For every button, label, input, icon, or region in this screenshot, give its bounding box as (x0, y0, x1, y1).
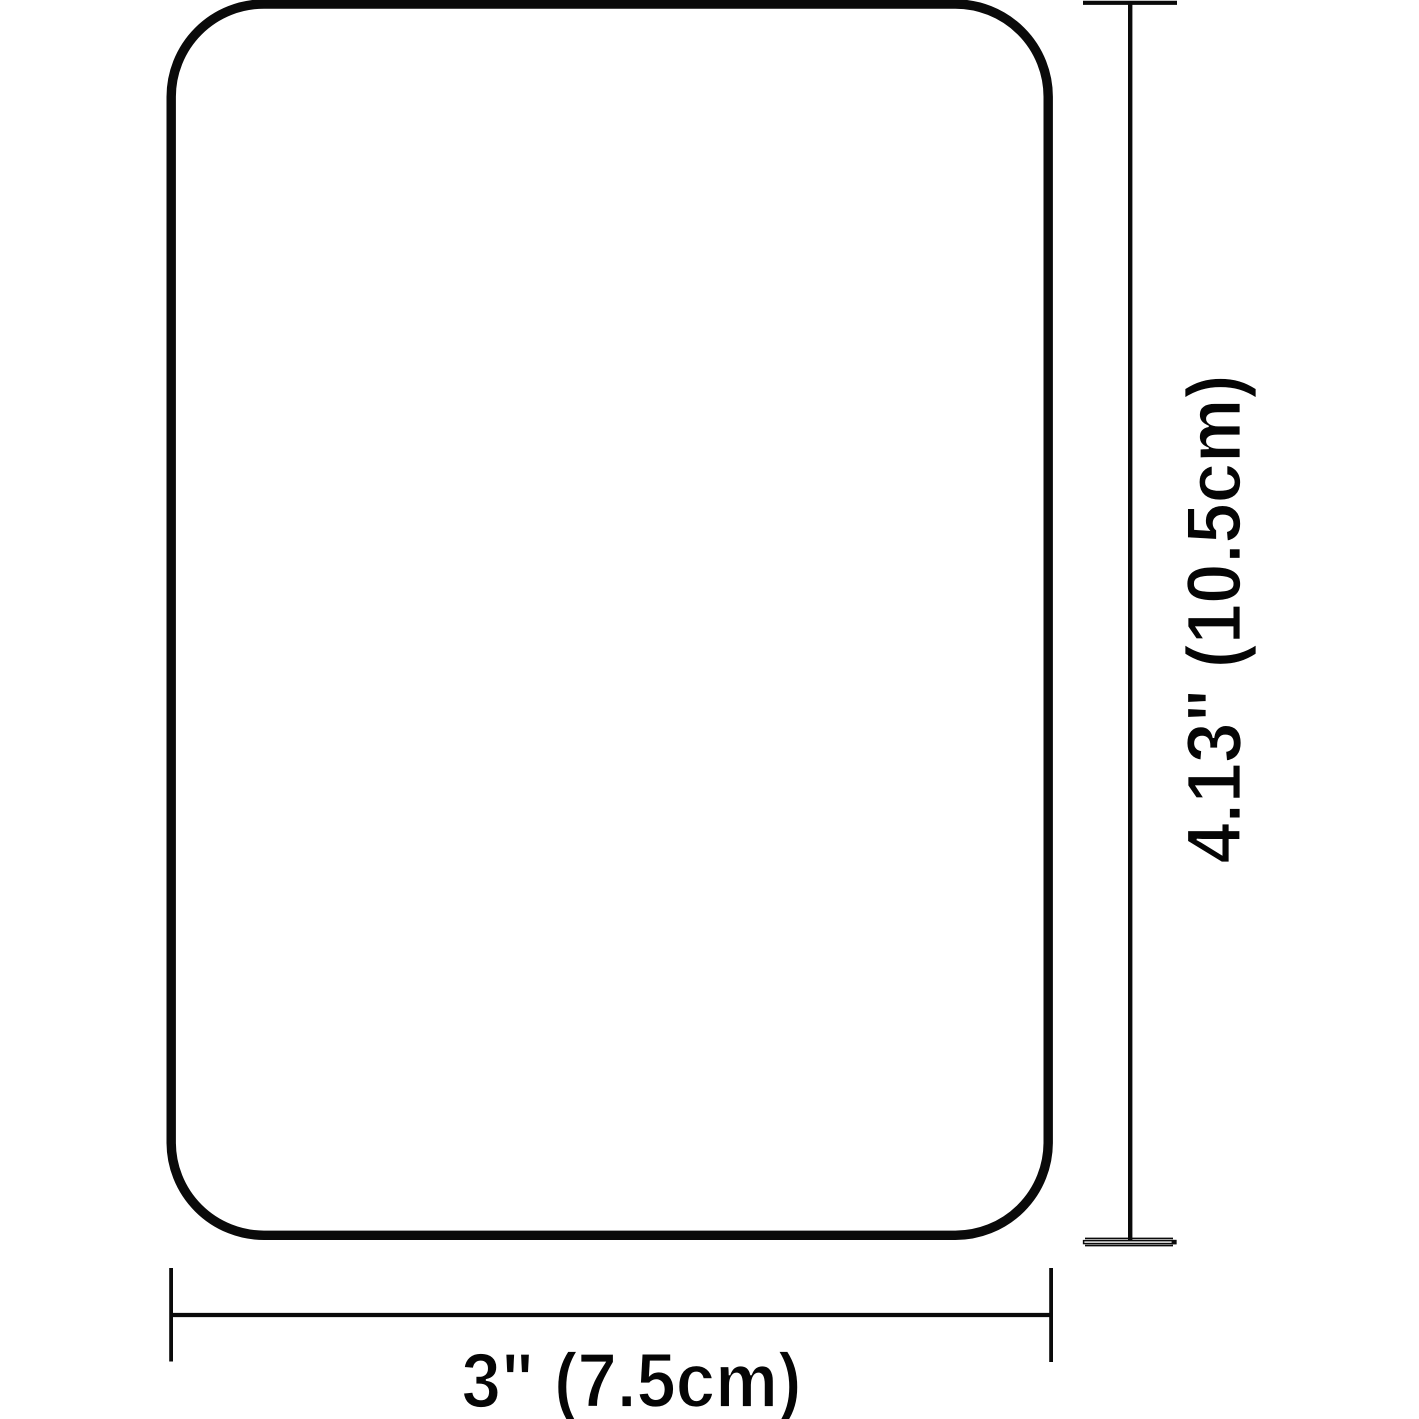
svg-text:4.13" (10.5cm): 4.13" (10.5cm) (1172, 375, 1258, 864)
svg-text:3" (7.5cm): 3" (7.5cm) (462, 1338, 802, 1419)
